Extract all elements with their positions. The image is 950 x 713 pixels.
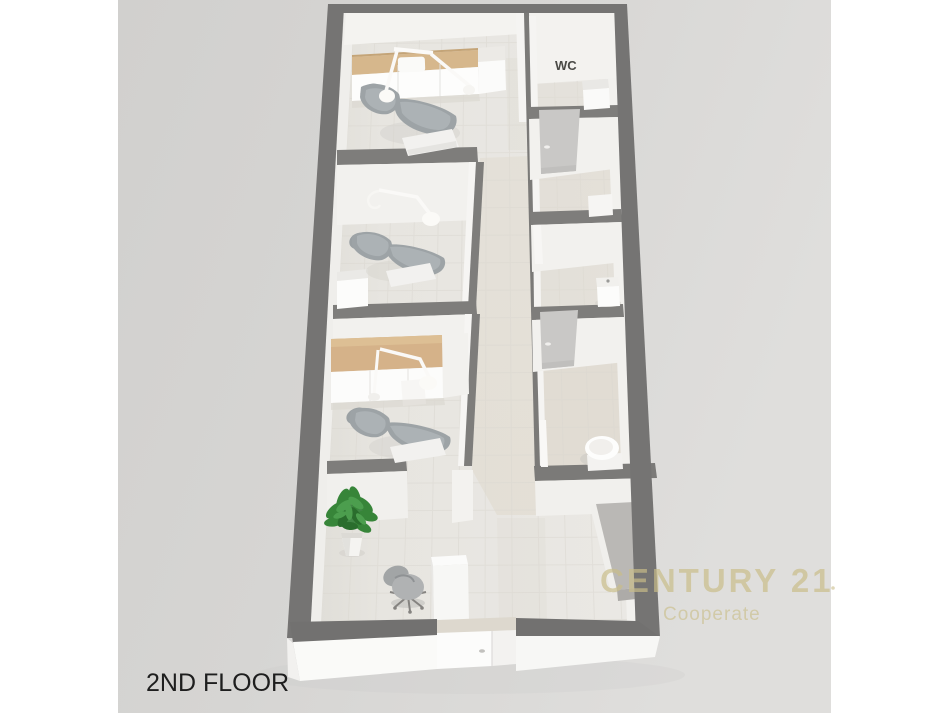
svg-text:WC: WC	[555, 58, 577, 73]
svg-text:2ND FLOOR: 2ND FLOOR	[146, 669, 289, 697]
svg-text:Cooperate: Cooperate	[663, 604, 761, 625]
svg-text:CENTURY 21: CENTURY 21	[600, 562, 834, 599]
